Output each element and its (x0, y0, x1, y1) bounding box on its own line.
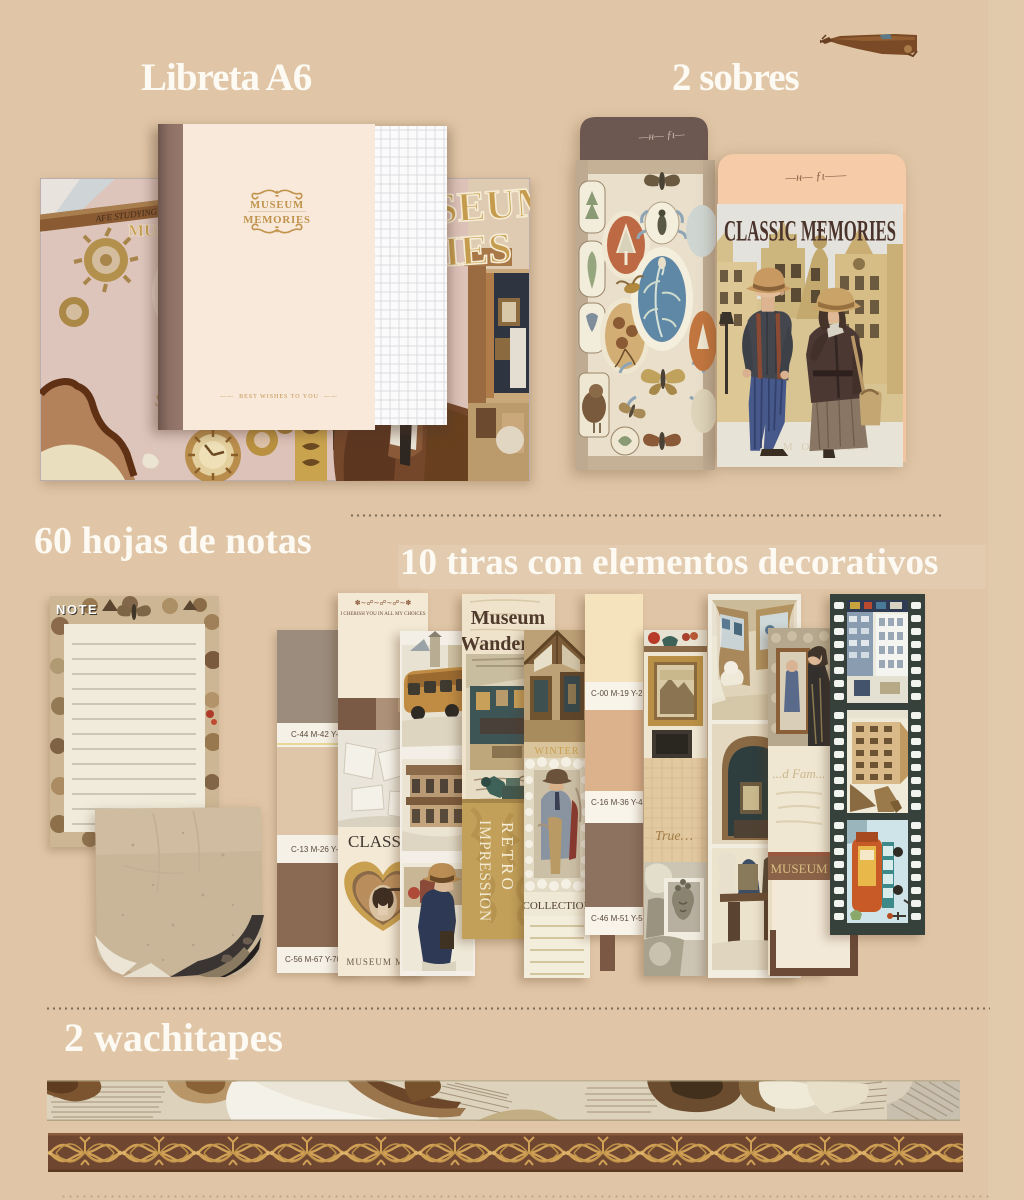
svg-text:True…: True… (655, 829, 693, 844)
svg-text:MEMORIES: MEMORIES (243, 214, 311, 226)
svg-text:Museum: Museum (471, 607, 546, 629)
svg-text:COLLECTION: COLLECTION (524, 900, 590, 912)
svg-text:C-16 M-36 Y-44: C-16 M-36 Y-44 (591, 798, 643, 807)
svg-text:IMPRESSION: IMPRESSION (476, 820, 493, 922)
svg-text:CLASSIC MEMORIES: CLASSIC MEMORIES (724, 214, 896, 247)
svg-text:C-00 M-19 Y-29: C-00 M-19 Y-29 (591, 689, 643, 698)
svg-text:WINTER: WINTER (535, 746, 580, 757)
svg-text:IES: IES (442, 225, 513, 276)
svg-text:RETRO: RETRO (498, 822, 517, 893)
svg-text:...d Fam...: ...d Fam... (772, 766, 825, 781)
svg-text:NOTE: NOTE (56, 602, 98, 617)
svg-text:MUSEUM: MUSEUM (250, 199, 304, 211)
svg-text:MUSEUM: MUSEUM (770, 861, 828, 876)
svg-text:C-46 M-51 Y-56: C-46 M-51 Y-56 (591, 914, 643, 923)
svg-text:✽∼☍∼☍∼☍∼✽: ✽∼☍∼☍∼☍∼✽ (355, 599, 412, 607)
svg-text:I CHERISH YOU IN ALL MY CHOICE: I CHERISH YOU IN ALL MY CHOICES (341, 612, 426, 617)
